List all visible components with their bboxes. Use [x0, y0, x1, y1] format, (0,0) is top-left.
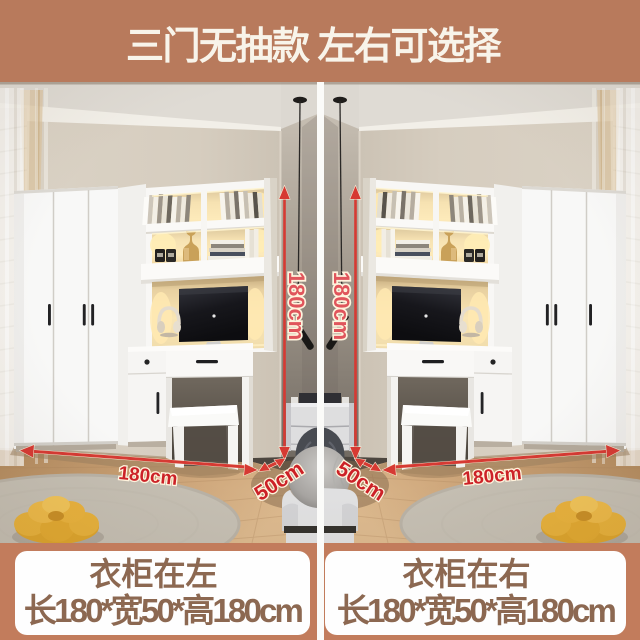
svg-text:180cm: 180cm [284, 272, 309, 341]
svg-text:180cm: 180cm [329, 272, 354, 341]
